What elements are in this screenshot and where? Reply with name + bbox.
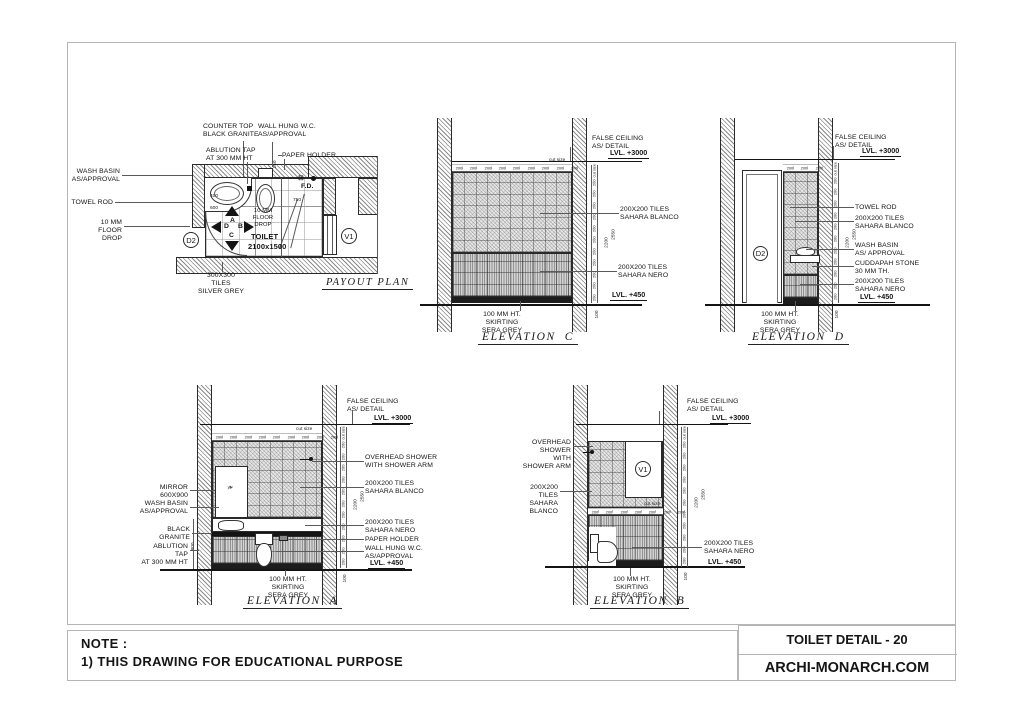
elev-d-blanco-label: 200X200 TILES SAHARA BLANCO — [855, 215, 914, 231]
elev-c-inner-total: 2200 — [603, 237, 608, 248]
elev-d-floor-line — [705, 304, 930, 306]
dim-label: 200 — [592, 250, 598, 253]
plan-ablution-tap-label: ABLUTION TAP AT 300 MM HT — [206, 147, 256, 163]
dim-label: 200 — [663, 510, 670, 513]
elev-a-overall-total: 2550 — [359, 491, 364, 502]
dim-label: 200 — [682, 537, 688, 540]
dim-label: 200 — [302, 436, 309, 439]
dim-label: 200 — [592, 227, 598, 230]
plan-room-name: TOILET — [251, 232, 278, 241]
leader-line — [833, 146, 834, 159]
leader-line — [285, 570, 286, 576]
note-body: 1) THIS DRAWING FOR EDUCATIONAL PURPOSE — [81, 654, 403, 669]
leader-line — [812, 266, 854, 267]
dim-line — [193, 519, 194, 569]
elev-b-false-ceiling-label: FALSE CEILING AS/ DETAIL — [687, 398, 739, 414]
leader-line — [806, 249, 854, 250]
elev-d-title: ELEVATION D — [748, 331, 849, 345]
leader-line — [540, 271, 617, 272]
leader-line — [190, 507, 219, 508]
plan-right-outer-wall — [358, 178, 378, 215]
dim-label: cut size — [682, 432, 688, 435]
elev-b-mid-dims: 200200200200200200200 — [588, 508, 663, 515]
leader-line — [276, 551, 364, 552]
elev-a-floor-line — [160, 569, 412, 571]
elev-c-title: ELEVATION C — [478, 331, 578, 345]
dim-label: 200 — [787, 167, 794, 170]
dim-label: 200 — [682, 560, 688, 563]
elev-b-blanco-label: 200X200 TILES SAHARA BLANCO — [512, 484, 558, 517]
plan-vent-window-line — [332, 216, 333, 254]
view-arrow-b-label: B — [238, 223, 243, 231]
plan-towel-rod-label: TOWEL ROD — [68, 199, 113, 207]
elev-c-ceiling-line — [452, 161, 642, 162]
dim-label: 200 — [592, 296, 598, 299]
elev-a-blanco-label: 200X200 TILES SAHARA BLANCO — [365, 480, 424, 496]
leader-line — [630, 568, 631, 576]
dim-label: 200 — [341, 479, 347, 482]
dim-label: 200 — [592, 285, 598, 288]
plan-wc-bowl-inner — [259, 188, 272, 209]
leader-line — [278, 155, 282, 156]
leader-line — [247, 162, 248, 184]
dim-label: 200 — [833, 296, 839, 299]
elev-a-ablution-label: ABLUTION TAP AT 300 MM HT — [140, 543, 188, 567]
brand-name: ARCHI-MONARCH.COM — [739, 660, 955, 676]
elev-a-ceiling-line — [200, 424, 410, 425]
elev-c-right-wall — [572, 118, 587, 332]
view-arrow-c-icon — [225, 241, 239, 251]
dim-label: 200 — [341, 467, 347, 470]
view-arrow-d-icon — [211, 221, 221, 233]
dim-label: 200 — [259, 436, 266, 439]
dim-label: 200 — [341, 443, 347, 446]
elev-d-counter-shelf — [790, 255, 820, 263]
elev-b-overhead-shower-label: OVERHEAD SHOWER WITH SHOWER ARM — [521, 439, 571, 472]
leader-line — [573, 446, 593, 447]
dim-label: 200 — [341, 455, 347, 458]
plan-counter-top-label: COUNTER TOP BLACK GRANITE — [203, 123, 259, 139]
dim-label: 200 — [682, 502, 688, 505]
dim-label: 200 — [592, 204, 598, 207]
elev-a-cut-label: cut size — [296, 426, 312, 431]
plan-door-tag: D2 — [183, 232, 199, 248]
dim-label: 200 — [833, 179, 839, 182]
elev-d-towel-rod-label: TOWEL ROD — [855, 204, 897, 212]
note-heading: NOTE : — [81, 636, 127, 651]
title-block: TOILET DETAIL - 20 ARCHI-MONARCH.COM — [738, 625, 956, 681]
elev-a-granite-label: BLACK GRANITE — [146, 526, 190, 542]
elev-d-lvl-floor: LVL. +450 — [858, 292, 895, 303]
dim-label: 200 — [833, 238, 839, 241]
drawing-title: TOILET DETAIL - 20 — [739, 632, 955, 647]
dim-label: 200 — [316, 436, 323, 439]
note-box: NOTE : 1) THIS DRAWING FOR EDUCATIONAL P… — [67, 630, 738, 681]
plan-title: PAYOUT PLAN — [322, 277, 413, 290]
dim-label: 200 — [470, 167, 477, 170]
plan-vent-window — [323, 215, 337, 255]
leader-line — [284, 159, 285, 170]
dim-label: 200 — [456, 167, 463, 170]
leader-line — [305, 525, 364, 526]
elev-a-lvl-floor: LVL. +450 — [368, 558, 405, 569]
leader-line — [312, 461, 364, 462]
dim-label: 200 — [592, 181, 598, 184]
plan-shaft-edge — [377, 156, 378, 274]
plan-left-wall — [192, 164, 205, 228]
leader-line — [540, 213, 619, 214]
dim-label: 200 — [556, 167, 563, 170]
plan-ablution-tap — [247, 186, 252, 191]
elev-a-paper-holder-label: PAPER HOLDER — [365, 536, 419, 544]
elev-a-mirror — [215, 466, 248, 518]
dim-label: 200 — [230, 436, 237, 439]
elev-d-floor-dim: 100 — [834, 310, 839, 318]
elev-a-title: ELEVATION A — [243, 595, 342, 609]
dim-label: 200 — [244, 436, 251, 439]
elev-d-left-wall — [720, 118, 735, 332]
plan-dim-basin: 400 — [210, 193, 218, 198]
elev-a-inner-total: 2200 — [352, 499, 357, 510]
elev-d-side-dims: cut size20020020020020020020020020020020… — [832, 163, 839, 303]
dim-label: cut size — [592, 170, 598, 173]
elev-c-skirting — [452, 297, 572, 303]
view-arrow-a-icon — [225, 206, 239, 216]
dim-label: 200 — [273, 436, 280, 439]
leader-line — [520, 301, 521, 311]
elev-b-ceiling-line — [576, 424, 728, 425]
elev-a-overhead-shower-label: OVERHEAD SHOWER WITH SHOWER ARM — [365, 454, 437, 470]
dim-label: 200 — [592, 193, 598, 196]
dim-label: 200 — [341, 526, 347, 529]
dim-label: 200 — [592, 510, 599, 513]
plan-wc-flush-plate — [258, 168, 273, 178]
view-arrow-a-label: A — [230, 217, 235, 225]
dim-label: 200 — [833, 273, 839, 276]
plan-dim-counter: 600 — [210, 205, 218, 210]
elev-a-right-wall — [322, 385, 337, 605]
elev-b-left-wall — [573, 385, 588, 605]
dim-label: 200 — [682, 513, 688, 516]
floor-drain-dot — [311, 176, 316, 181]
elev-c-lvl-ceiling: LVL. +3000 — [608, 148, 649, 159]
elev-b-title: ELEVATION B — [590, 595, 689, 609]
leader-line — [632, 547, 702, 548]
elev-a-lvl-ceiling: LVL. +3000 — [372, 413, 413, 424]
elev-b-lvl-ceiling: LVL. +3000 — [710, 413, 751, 424]
elev-c-left-wall — [437, 118, 452, 332]
elev-d-inner-total: 2200 — [844, 237, 849, 248]
elev-b-cut-label: cut size — [644, 501, 660, 506]
dim-label: cut size — [833, 168, 839, 171]
elev-a-left-wall — [197, 385, 212, 605]
elev-c-top-dims: 200200200200200200200200200 — [452, 164, 572, 172]
plan-floor-drop-label: 10 MM FLOOR DROP — [78, 219, 122, 243]
dim-label: 200 — [513, 167, 520, 170]
dim-label: 200 — [801, 167, 808, 170]
dim-label: 200 — [833, 203, 839, 206]
leader-line — [222, 262, 223, 272]
elev-c-cut-label: cut size — [549, 157, 565, 162]
elev-c-lvl-floor: LVL. +450 — [610, 290, 647, 301]
dim-label: 200 — [682, 455, 688, 458]
elev-d-door-frame — [746, 174, 778, 303]
elev-a-mirror-label: MIRROR 600X900 — [148, 484, 188, 500]
dim-label: 200 — [341, 561, 347, 564]
dim-label: 200 — [592, 239, 598, 242]
elev-a-basin — [218, 520, 244, 531]
dim-label: 200 — [216, 436, 223, 439]
elev-a-floor-dim: 100 — [342, 574, 347, 582]
dim-label: 200 — [815, 167, 822, 170]
elev-b-right-wall — [663, 385, 678, 605]
leader-line — [800, 284, 854, 285]
dim-label: 200 — [682, 443, 688, 446]
elev-b-nero-label: 200X200 TILES SAHARA NERO — [704, 540, 754, 556]
leader-line — [795, 301, 796, 311]
floor-drain-label: F.D. — [301, 183, 313, 191]
dim-label: 200 — [620, 510, 627, 513]
elev-a-paper-holder — [279, 535, 288, 541]
dim-label: 200 — [682, 525, 688, 528]
plan-wall-hung-wc-label: WALL HUNG W.C. AS/APPROVAL — [258, 123, 316, 139]
elev-b-lvl-floor: LVL. +450 — [706, 557, 743, 568]
dim-label: 200 — [833, 226, 839, 229]
leader-line — [790, 207, 854, 208]
elev-b-vent-tag: V1 — [635, 461, 651, 477]
dim-label: 200 — [542, 167, 549, 170]
view-arrow-c-label: C — [229, 232, 234, 240]
dim-label: 200 — [833, 214, 839, 217]
leader-line — [124, 226, 190, 227]
dim-label: 200 — [341, 490, 347, 493]
dim-label: 200 — [833, 261, 839, 264]
dim-label: cut size — [341, 432, 347, 435]
floor-drain-icon: ⊠ — [298, 174, 304, 182]
dim-label: 200 — [592, 262, 598, 265]
dim-label: 200 — [341, 502, 347, 505]
elev-a-false-ceiling-label: FALSE CEILING AS/ DETAIL — [347, 398, 399, 414]
leader-line — [352, 410, 353, 424]
elev-a-wash-basin-label: WASH BASIN AS/APPROVAL — [136, 500, 188, 516]
plan-wash-basin-label: WASH BASIN AS/APPROVAL — [68, 168, 120, 184]
plan-room-size: 2100x1500 — [248, 242, 286, 251]
elev-d-wash-basin-label: WASH BASIN AS/ APPROVAL — [855, 242, 905, 258]
plan-floor-drop-inner: 10 MM FLOOR DROP — [246, 208, 280, 229]
dim-label: 200 — [570, 167, 577, 170]
elev-c-side-dims: cut size20020020020020020020020020020020… — [591, 165, 598, 303]
leader-line — [192, 533, 212, 534]
dim-label: 200 — [682, 478, 688, 481]
dim-label: 200 — [682, 490, 688, 493]
dim-label: 200 — [635, 510, 642, 513]
view-arrow-d-label: D — [224, 223, 229, 231]
dim-label: 200 — [341, 514, 347, 517]
plan-right-inner-wall — [323, 178, 336, 215]
elev-d-right-wall — [818, 118, 833, 332]
leader-line — [560, 491, 592, 492]
dim-label: 200 — [287, 436, 294, 439]
elev-d-door-tag: D2 — [753, 246, 768, 261]
leader-line — [272, 142, 273, 167]
elev-a-side-dims: cut size20020020020020020020020020020020… — [340, 427, 347, 568]
plan-dim-bay: 750 — [293, 197, 301, 202]
leader-line — [300, 487, 364, 488]
leader-line — [795, 221, 854, 222]
dim-label: 200 — [682, 548, 688, 551]
elev-a-wc-bowl — [256, 543, 272, 567]
dim-label: 200 — [606, 510, 613, 513]
elev-d-nero-tiles — [783, 275, 818, 298]
leader-line — [115, 202, 192, 203]
dim-label: 200 — [682, 467, 688, 470]
dim-label: 200 — [330, 436, 337, 439]
dim-label: 200 — [592, 216, 598, 219]
elev-b-side-dims: cut size20020020020020020020020020020020… — [681, 427, 688, 567]
dim-label: 200 — [649, 510, 656, 513]
elev-c-floor-dim: 100 — [594, 310, 599, 318]
elev-d-top-dims: 200200200 — [783, 164, 818, 172]
plan-paper-holder-label: PAPER HOLDER — [282, 152, 336, 160]
title-block-divider — [739, 654, 957, 655]
elev-c-nero-tiles — [452, 253, 572, 297]
elev-d-ceiling-line — [735, 159, 895, 160]
elev-c-floor-line — [420, 304, 642, 306]
elev-c-nero-label: 200X200 TILES SAHARA NERO — [618, 264, 668, 280]
elev-c-overall-total: 2550 — [610, 229, 615, 240]
dim-label: 200 — [592, 273, 598, 276]
leader-line — [659, 411, 660, 424]
elev-b-floor-dim: 100 — [683, 572, 688, 580]
elev-d-lvl-ceiling: LVL. +3000 — [860, 146, 901, 157]
leader-line — [570, 147, 571, 161]
plan-vent-window-line — [327, 216, 328, 254]
plan-vent-tag: V1 — [341, 228, 357, 244]
drawing-sheet: { "page": { "note_heading": "NOTE :", "n… — [0, 0, 1024, 724]
dim-label: 200 — [833, 191, 839, 194]
dim-label: 200 — [527, 167, 534, 170]
elev-b-inner-total: 2200 — [693, 497, 698, 508]
elev-b-wc-bowl — [597, 541, 618, 563]
plan-floor-tiles-label: 300X300 TILES SILVER GREY — [198, 272, 244, 296]
dim-label: 200 — [484, 167, 491, 170]
dim-label: 200 — [499, 167, 506, 170]
elev-c-blanco-label: 200X200 TILES SAHARA BLANCO — [620, 206, 679, 222]
elev-b-overall-total: 2550 — [700, 489, 705, 500]
elev-a-top-dims: 200200200200200200200200200 — [212, 433, 322, 441]
elev-a-nero-label: 200X200 TILES SAHARA NERO — [365, 519, 415, 535]
elev-d-cuddapah-label: CUDDAPAH STONE 30 MM TH. — [855, 260, 919, 276]
shower-head-icon — [590, 450, 594, 454]
leader-line — [289, 539, 364, 540]
leader-line — [122, 175, 192, 176]
leader-line — [190, 490, 215, 491]
